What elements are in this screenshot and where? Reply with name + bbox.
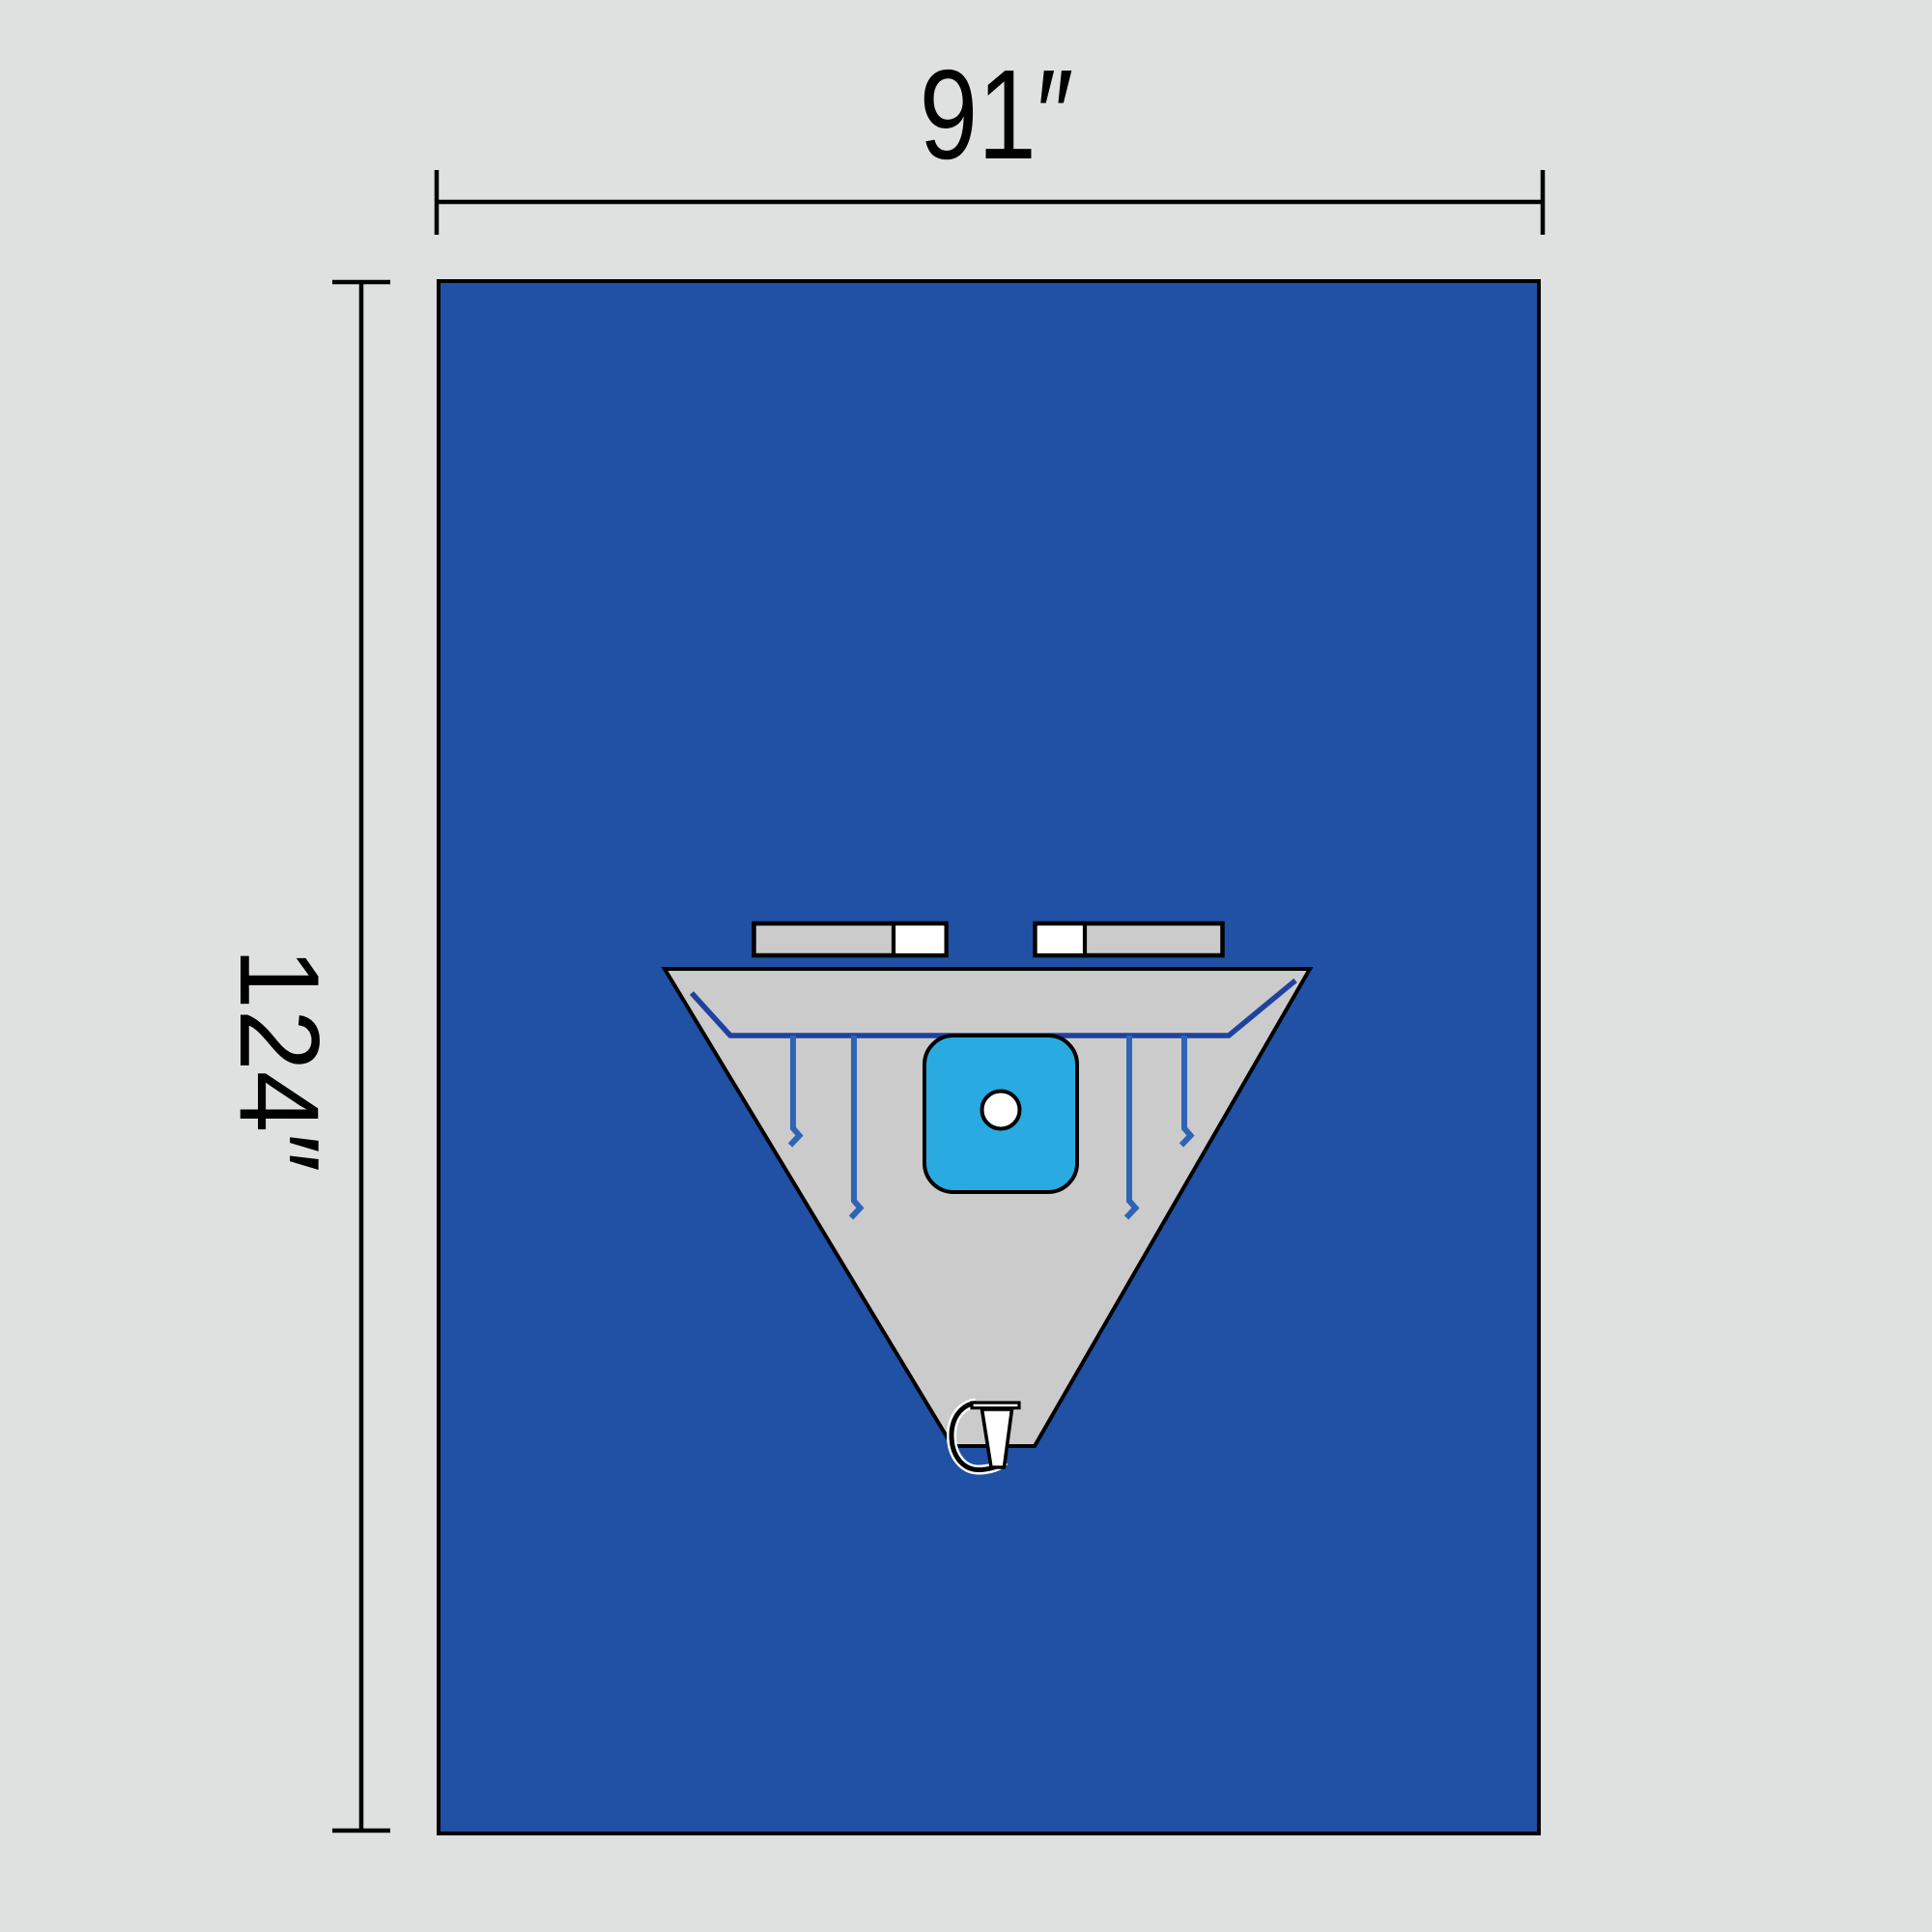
svg-text:124″: 124″ bbox=[216, 948, 343, 1172]
svg-text:91″: 91″ bbox=[920, 43, 1074, 185]
